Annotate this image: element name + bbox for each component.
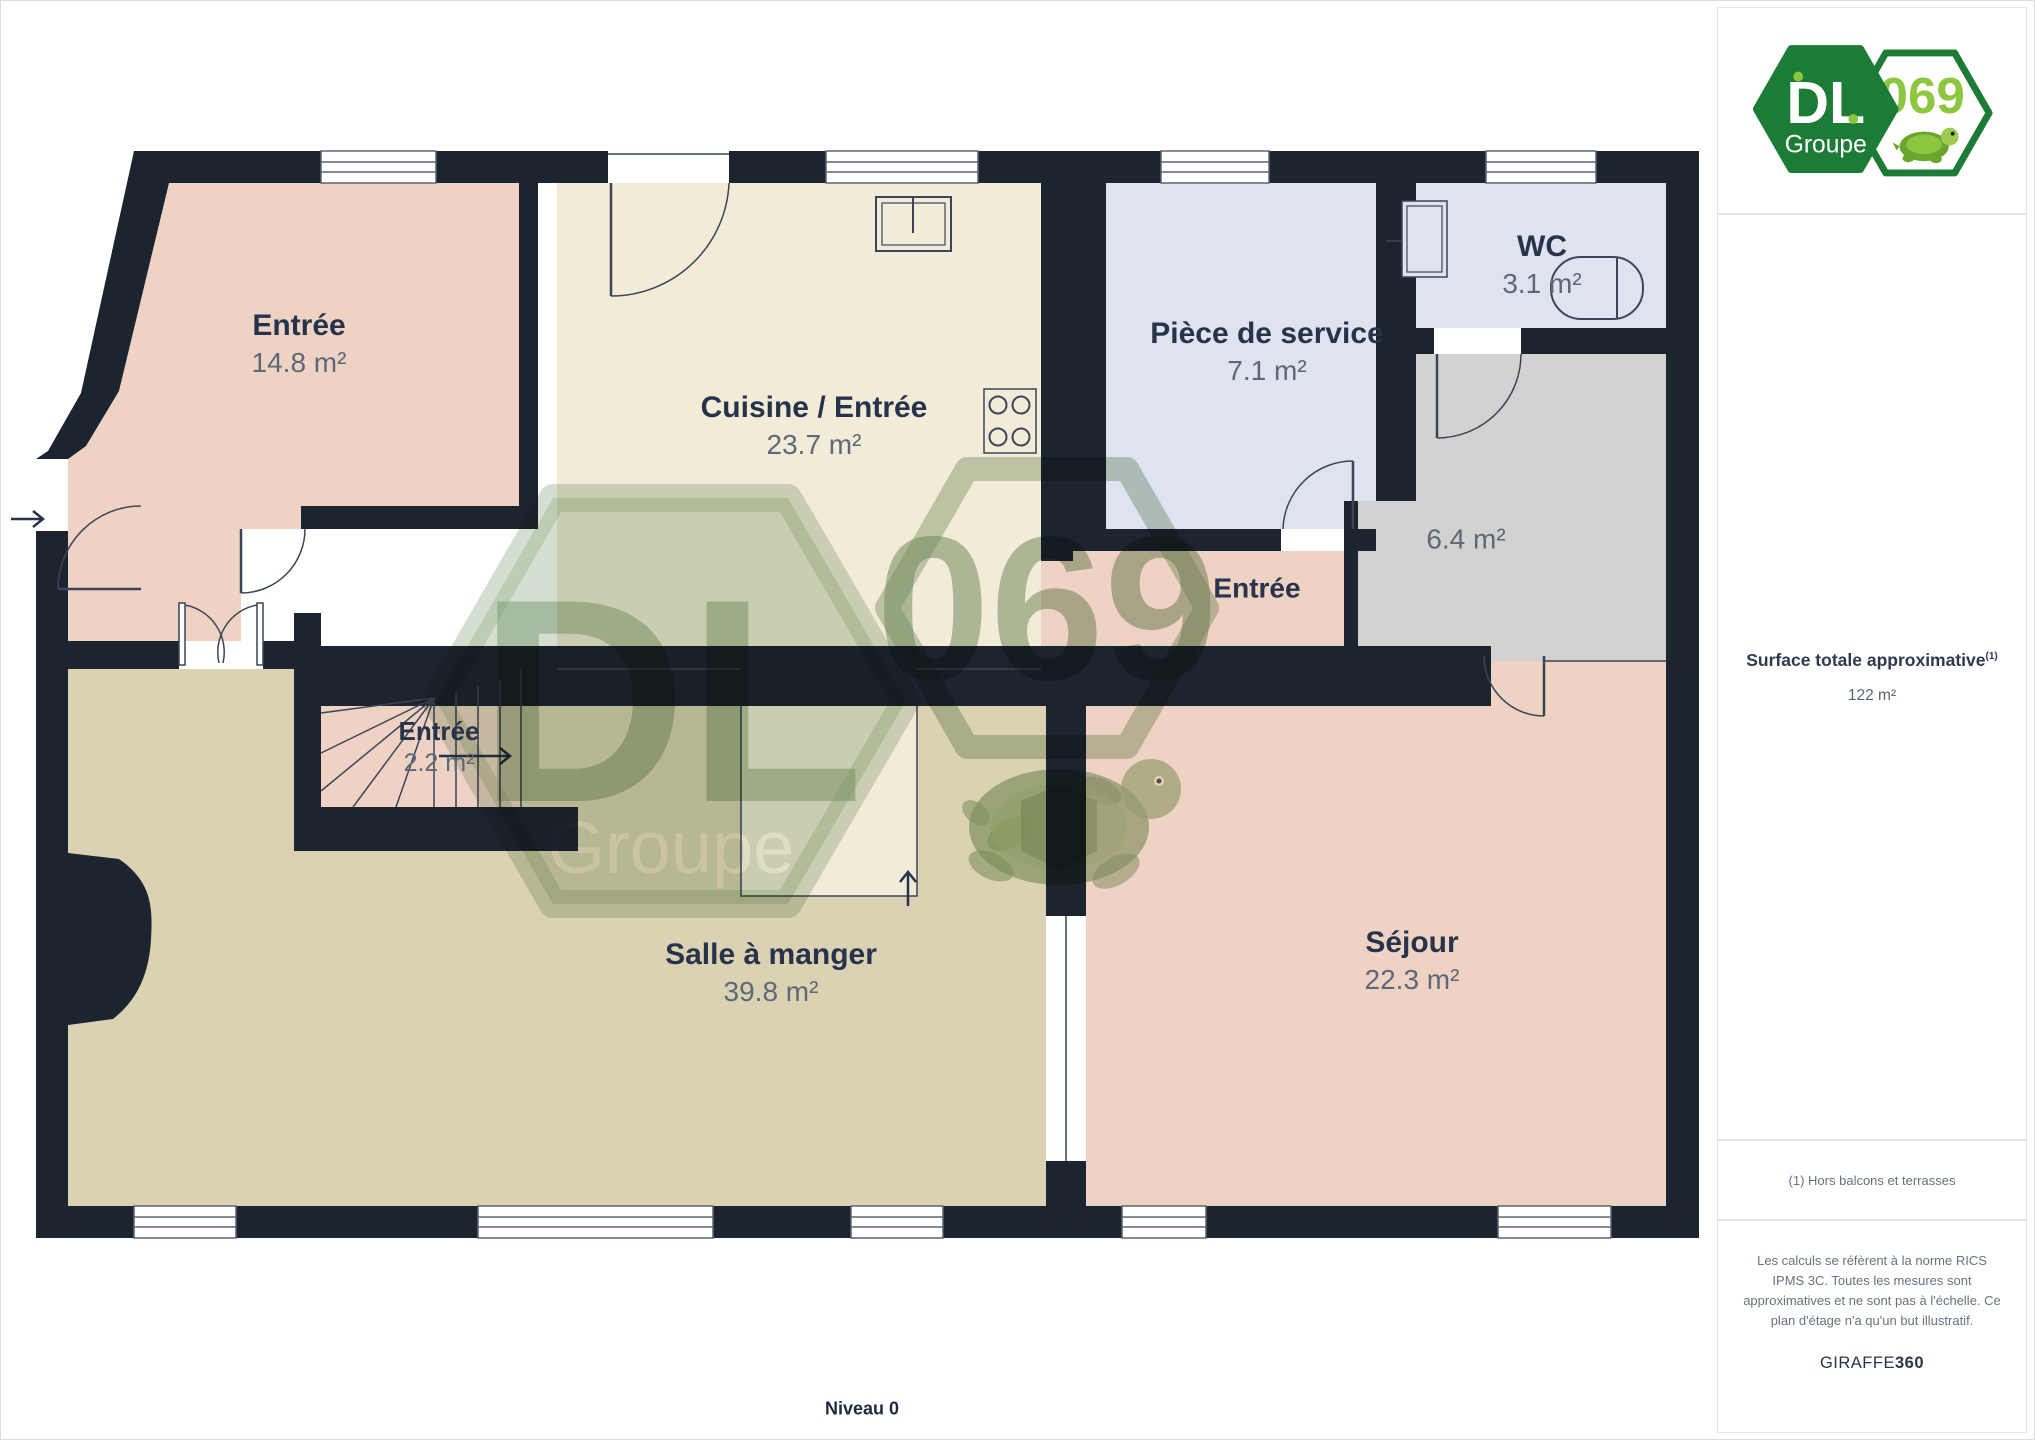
window	[321, 151, 436, 183]
level-label: Niveau 0	[825, 1399, 899, 1420]
surface-summary: Surface totale approximative(1) 122 m²	[1717, 214, 2027, 1140]
window	[134, 1206, 236, 1238]
disclaimer-box: Les calculs se réfèrent à la norme RICS …	[1717, 1220, 2027, 1433]
watermark-069-text: 069	[876, 494, 1218, 723]
floor-plan-page: DL Groupe 069	[0, 0, 2035, 1440]
stove	[984, 389, 1036, 453]
window	[1122, 1206, 1206, 1238]
logo-box: 069 DL Groupe	[1717, 7, 2027, 214]
logo-accent-dot	[1848, 113, 1858, 123]
window	[1161, 151, 1269, 183]
sejour-floor	[1086, 661, 1666, 1206]
piece-service-floor	[1106, 183, 1376, 529]
giraffe360-brand: GIRAFFE360	[1740, 1354, 2004, 1373]
footnote-text: (1) Hors balcons et terrasses	[1789, 1173, 1956, 1188]
disclaimer-text: Les calculs se réfèrent à la norme RICS …	[1740, 1251, 2004, 1332]
window	[851, 1206, 943, 1238]
window	[826, 151, 978, 183]
dl-groupe-069-logo: 069 DL Groupe	[1749, 31, 1995, 191]
surface-total-value: 122 m²	[1848, 687, 1896, 705]
window	[478, 1206, 713, 1238]
footnote-box: (1) Hors balcons et terrasses	[1717, 1140, 2027, 1220]
window	[1498, 1206, 1611, 1238]
surface-total-label: Surface totale approximative(1)	[1746, 650, 1997, 671]
entry-arrow	[11, 511, 43, 527]
floor-plan-drawing: DL Groupe 069	[1, 1, 1717, 1440]
logo-accent-dot	[1793, 71, 1803, 81]
floor-plan: DL Groupe 069	[1, 1, 1717, 1440]
badge-groupe-text: Groupe	[1785, 131, 1867, 158]
entree-inner-door	[241, 529, 305, 593]
window	[1486, 151, 1596, 183]
watermark-groupe-text: Groupe	[548, 806, 795, 889]
